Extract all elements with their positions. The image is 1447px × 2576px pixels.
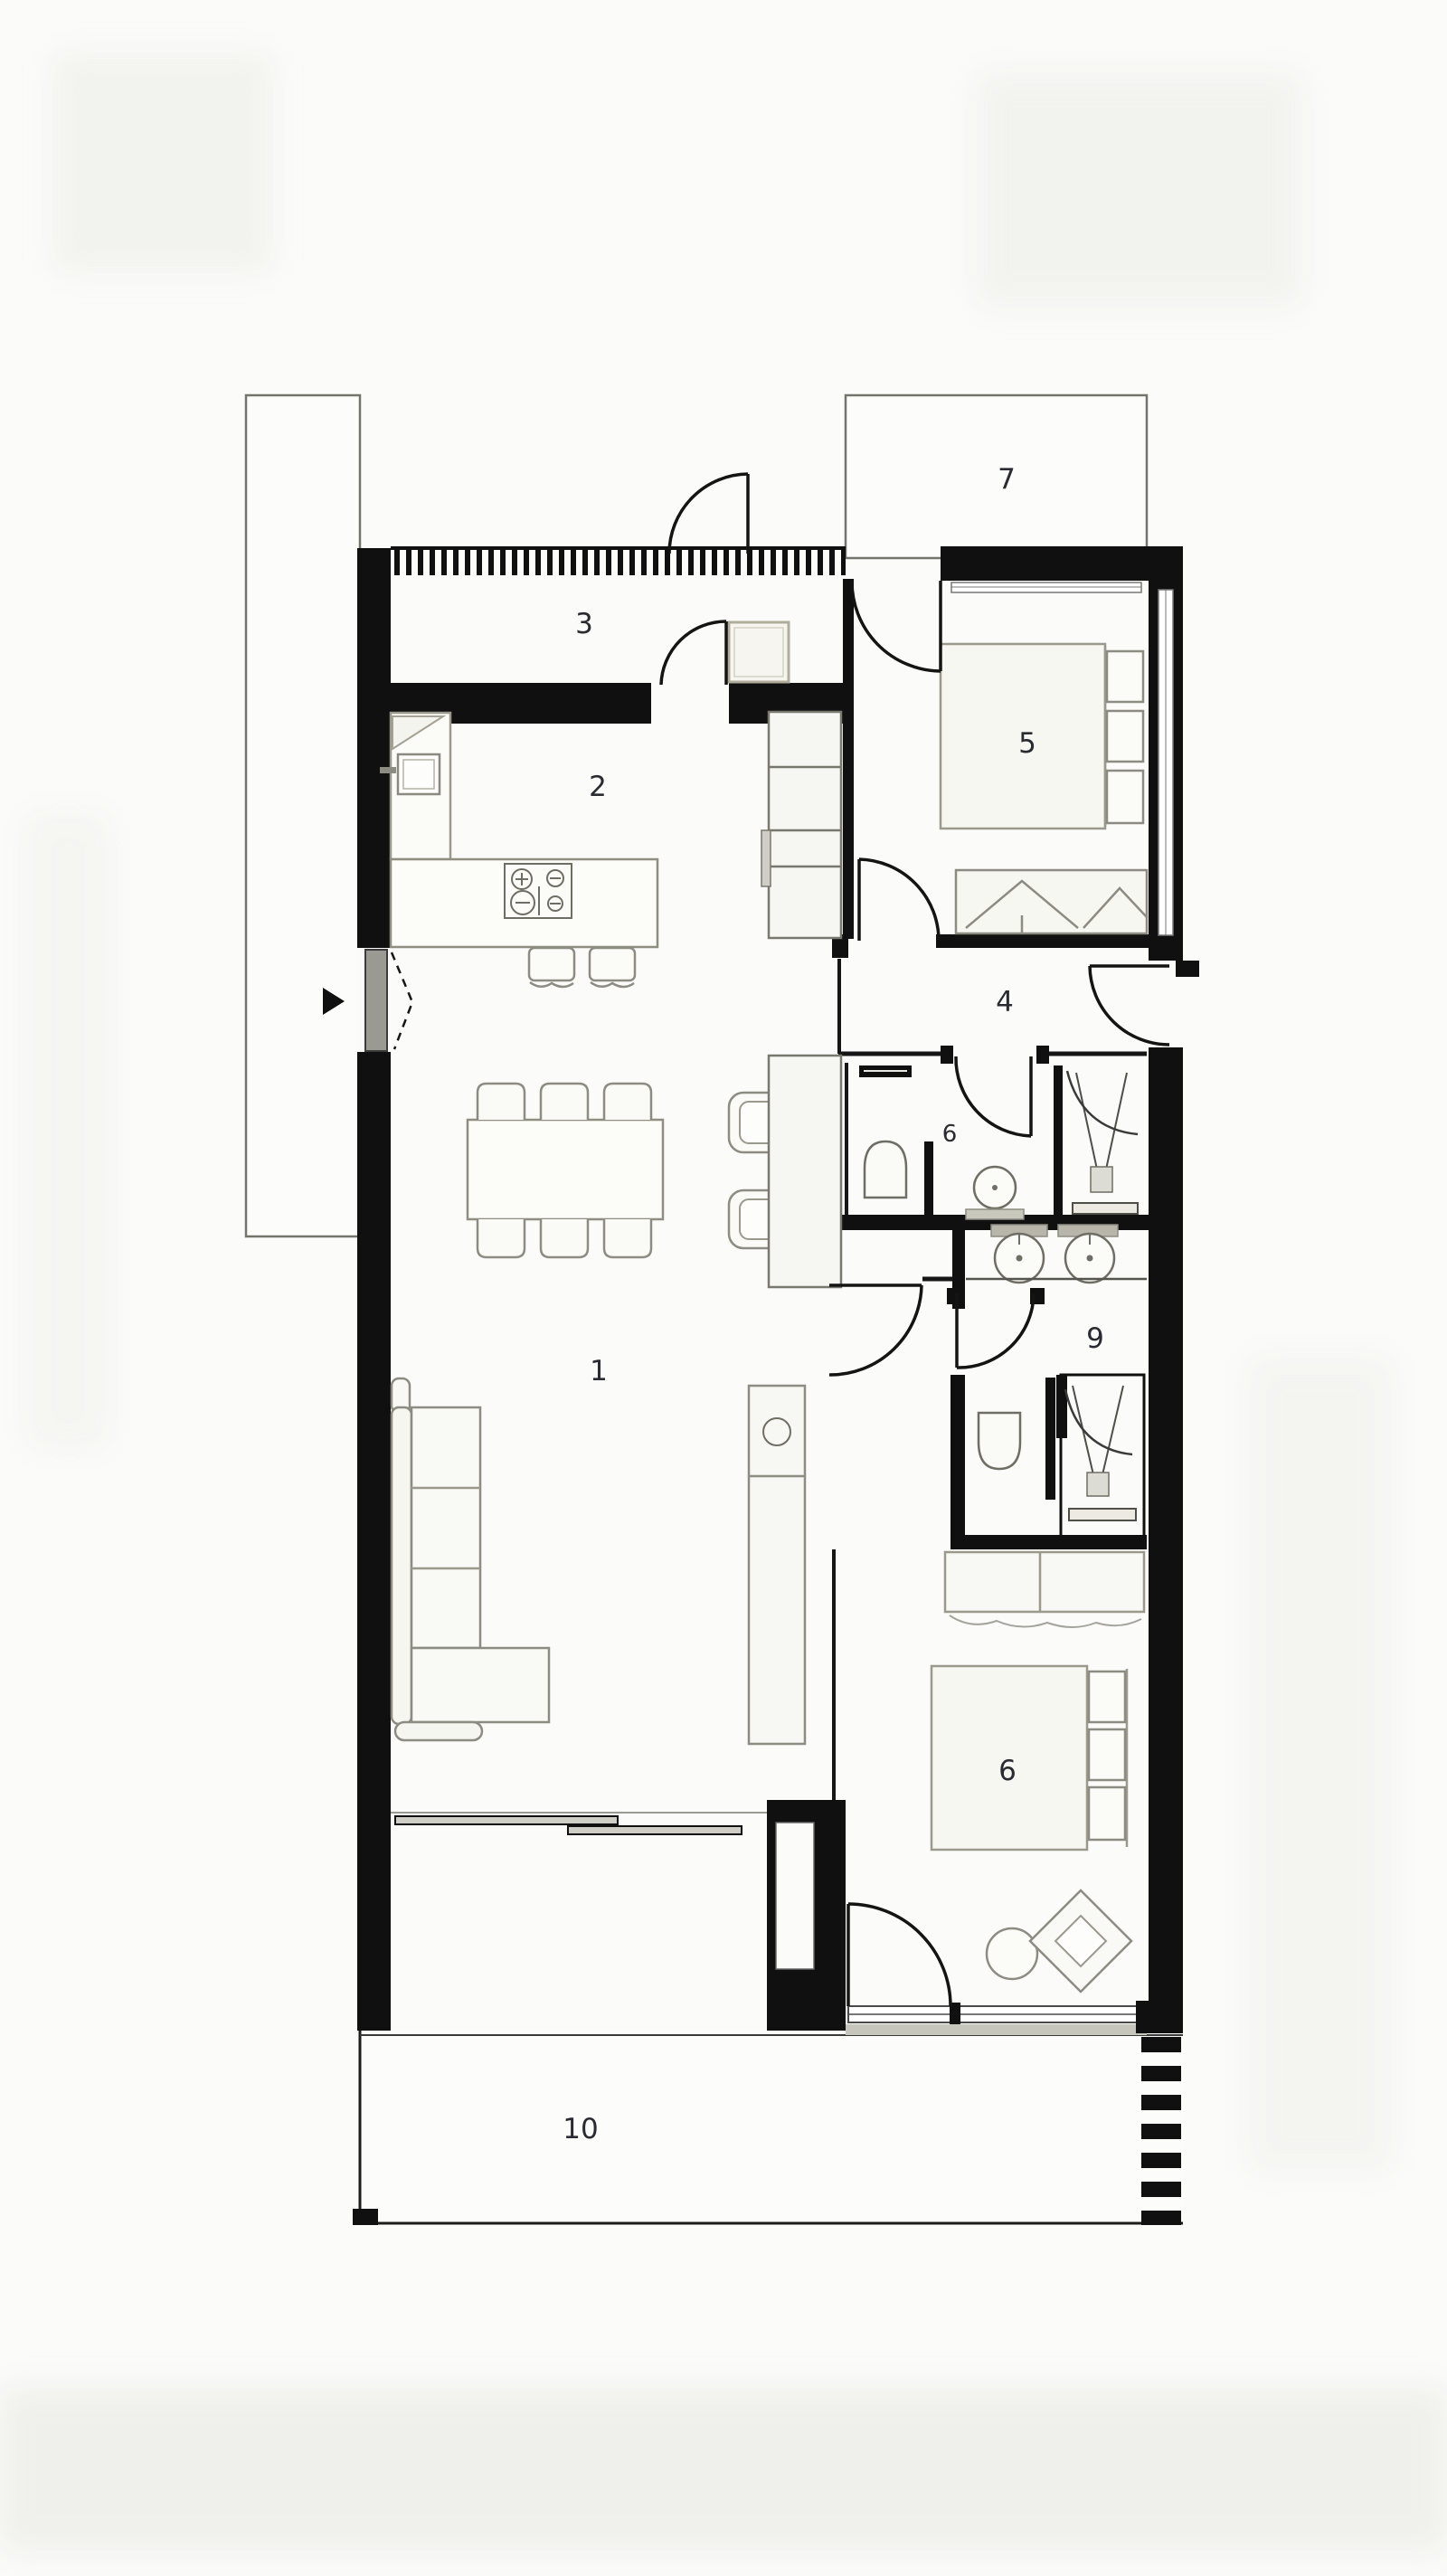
pillow	[1089, 1787, 1125, 1840]
cabinet-handle	[761, 830, 771, 886]
shower-tray	[1069, 1509, 1136, 1520]
terrace-top	[846, 395, 1147, 558]
wardrobe-top	[956, 870, 1147, 933]
dining-table	[468, 1120, 663, 1219]
pillow	[1107, 651, 1143, 702]
sofa-chaise	[411, 1648, 549, 1722]
pillow	[1089, 1729, 1125, 1780]
patio-niche	[776, 1823, 814, 1969]
chair	[541, 1084, 588, 1120]
room-label-bathroom: 6	[942, 1121, 958, 1148]
media-partition	[769, 1056, 841, 1287]
sofa-back	[392, 1407, 411, 1724]
shower-drain	[1087, 1473, 1109, 1496]
door-jamb	[1036, 1046, 1049, 1064]
wall-left-upper	[357, 548, 391, 948]
door-jamb	[941, 1046, 953, 1064]
chair	[478, 1219, 525, 1257]
pillow	[1107, 711, 1143, 762]
chair	[604, 1084, 651, 1120]
floor-plan-page: 1 2 3 4 5 6 7 9 6 10	[0, 0, 1447, 2576]
wall-top-right	[941, 546, 1183, 581]
chair	[478, 1084, 525, 1120]
sliding-panel	[568, 1826, 742, 1834]
faucet-icon	[380, 767, 396, 773]
wall-left-lower	[357, 1052, 391, 2031]
room-label-living: 1	[590, 1355, 608, 1387]
dining-set	[468, 1084, 663, 1257]
wall-bed5-hall	[936, 934, 1149, 948]
bed-bottom	[932, 1666, 1127, 1850]
shower-tray	[1073, 1203, 1138, 1214]
cooktop	[505, 864, 572, 918]
floor-plan-drawing: 1 2 3 4 5 6 7 9 6 10	[0, 0, 1447, 2576]
wall-ensuite-left	[950, 1375, 965, 1548]
toilet	[979, 1413, 1020, 1469]
terrace-bottom	[353, 2031, 1183, 2225]
side-table	[987, 1928, 1037, 1979]
shower-drain	[1091, 1167, 1112, 1192]
wall-right-lower	[1149, 1047, 1183, 2031]
wall-corner-bottom-right	[1136, 2001, 1183, 2033]
window-sill	[846, 2024, 1147, 2035]
room-label-kitchen: 2	[589, 771, 607, 803]
room-label-bedroom-top: 5	[1018, 727, 1036, 760]
sliding-panel	[395, 1816, 618, 1824]
toilet	[865, 1141, 906, 1198]
sliding-panel	[365, 950, 387, 1051]
kitchen-counter-left	[380, 713, 450, 859]
terrace-corner-post	[353, 2209, 378, 2225]
wall-shower-partition	[1054, 1065, 1063, 1217]
sofa-seats	[411, 1407, 480, 1648]
wall-door-stop	[1176, 961, 1199, 977]
bar-stool	[590, 948, 635, 987]
pillow	[1089, 1672, 1125, 1722]
room-label-bedroom-bottom: 6	[998, 1755, 1017, 1787]
wall-vestibule	[843, 579, 854, 939]
entry-closet	[729, 622, 789, 682]
sink-base	[966, 1209, 1024, 1219]
room-label-dressing: 9	[1086, 1322, 1104, 1355]
wall-wc-partition	[924, 1141, 933, 1217]
door-jamb	[947, 1288, 961, 1304]
bed-top	[941, 644, 1143, 829]
wall-ensuite-bottom	[950, 1535, 1147, 1549]
bar-stool	[529, 948, 574, 987]
sofa-armrest	[395, 1722, 482, 1740]
chair	[604, 1219, 651, 1257]
tall-cabinet	[769, 712, 841, 938]
chair	[541, 1219, 588, 1257]
room-label-entry: 3	[575, 608, 593, 640]
room-label-terrace-top: 7	[998, 463, 1016, 496]
room-label-terrace-bottom: 10	[563, 2113, 598, 2145]
pillow	[1107, 771, 1143, 823]
room-label-hallway: 4	[996, 986, 1014, 1018]
tv-console	[749, 1386, 805, 1744]
terrace-left	[246, 395, 360, 1236]
wall-ensuite-partition	[1045, 1378, 1055, 1500]
